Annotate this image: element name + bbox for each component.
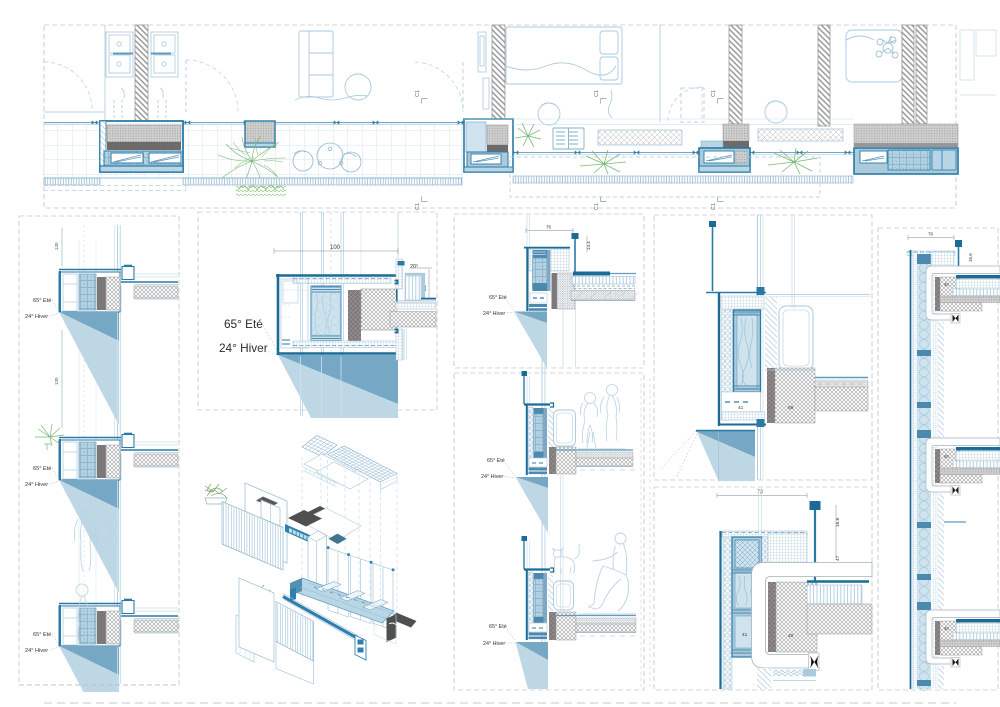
svg-text:24° Hiver: 24° Hiver — [481, 474, 503, 480]
svg-text:C1: C1 — [415, 203, 421, 210]
svg-text:65° Eté: 65° Eté — [489, 624, 507, 630]
svg-text:47: 47 — [835, 555, 841, 561]
svg-text:41: 41 — [738, 405, 744, 411]
svg-text:130: 130 — [54, 242, 59, 250]
svg-text:76: 76 — [928, 232, 934, 237]
svg-text:100: 100 — [330, 245, 341, 251]
svg-text:40: 40 — [788, 633, 794, 639]
svg-text:24° Hiver: 24° Hiver — [219, 341, 268, 355]
svg-text:24° Hiver: 24° Hiver — [483, 311, 505, 317]
svg-text:C1: C1 — [594, 203, 600, 210]
svg-text:65° Eté: 65° Eté — [489, 295, 507, 301]
svg-text:76: 76 — [546, 225, 552, 230]
svg-text:14.4: 14.4 — [586, 241, 591, 250]
svg-text:130: 130 — [54, 377, 59, 385]
svg-text:C1: C1 — [711, 90, 717, 97]
svg-text:20⁵: 20⁵ — [410, 263, 418, 270]
svg-text:C1: C1 — [594, 90, 600, 97]
svg-text:24° Hiver: 24° Hiver — [483, 641, 505, 647]
svg-text:69: 69 — [788, 405, 794, 411]
svg-text:65° Eté: 65° Eté — [224, 317, 263, 331]
svg-text:16.6: 16.6 — [968, 253, 973, 262]
svg-text:65° Eté: 65° Eté — [487, 458, 505, 464]
svg-text:16.6: 16.6 — [835, 517, 841, 527]
svg-text:41: 41 — [742, 632, 748, 638]
svg-text:C1: C1 — [415, 90, 421, 97]
svg-text:C1: C1 — [711, 203, 717, 210]
svg-text:40: 40 — [944, 282, 949, 287]
svg-text:73: 73 — [757, 490, 763, 496]
